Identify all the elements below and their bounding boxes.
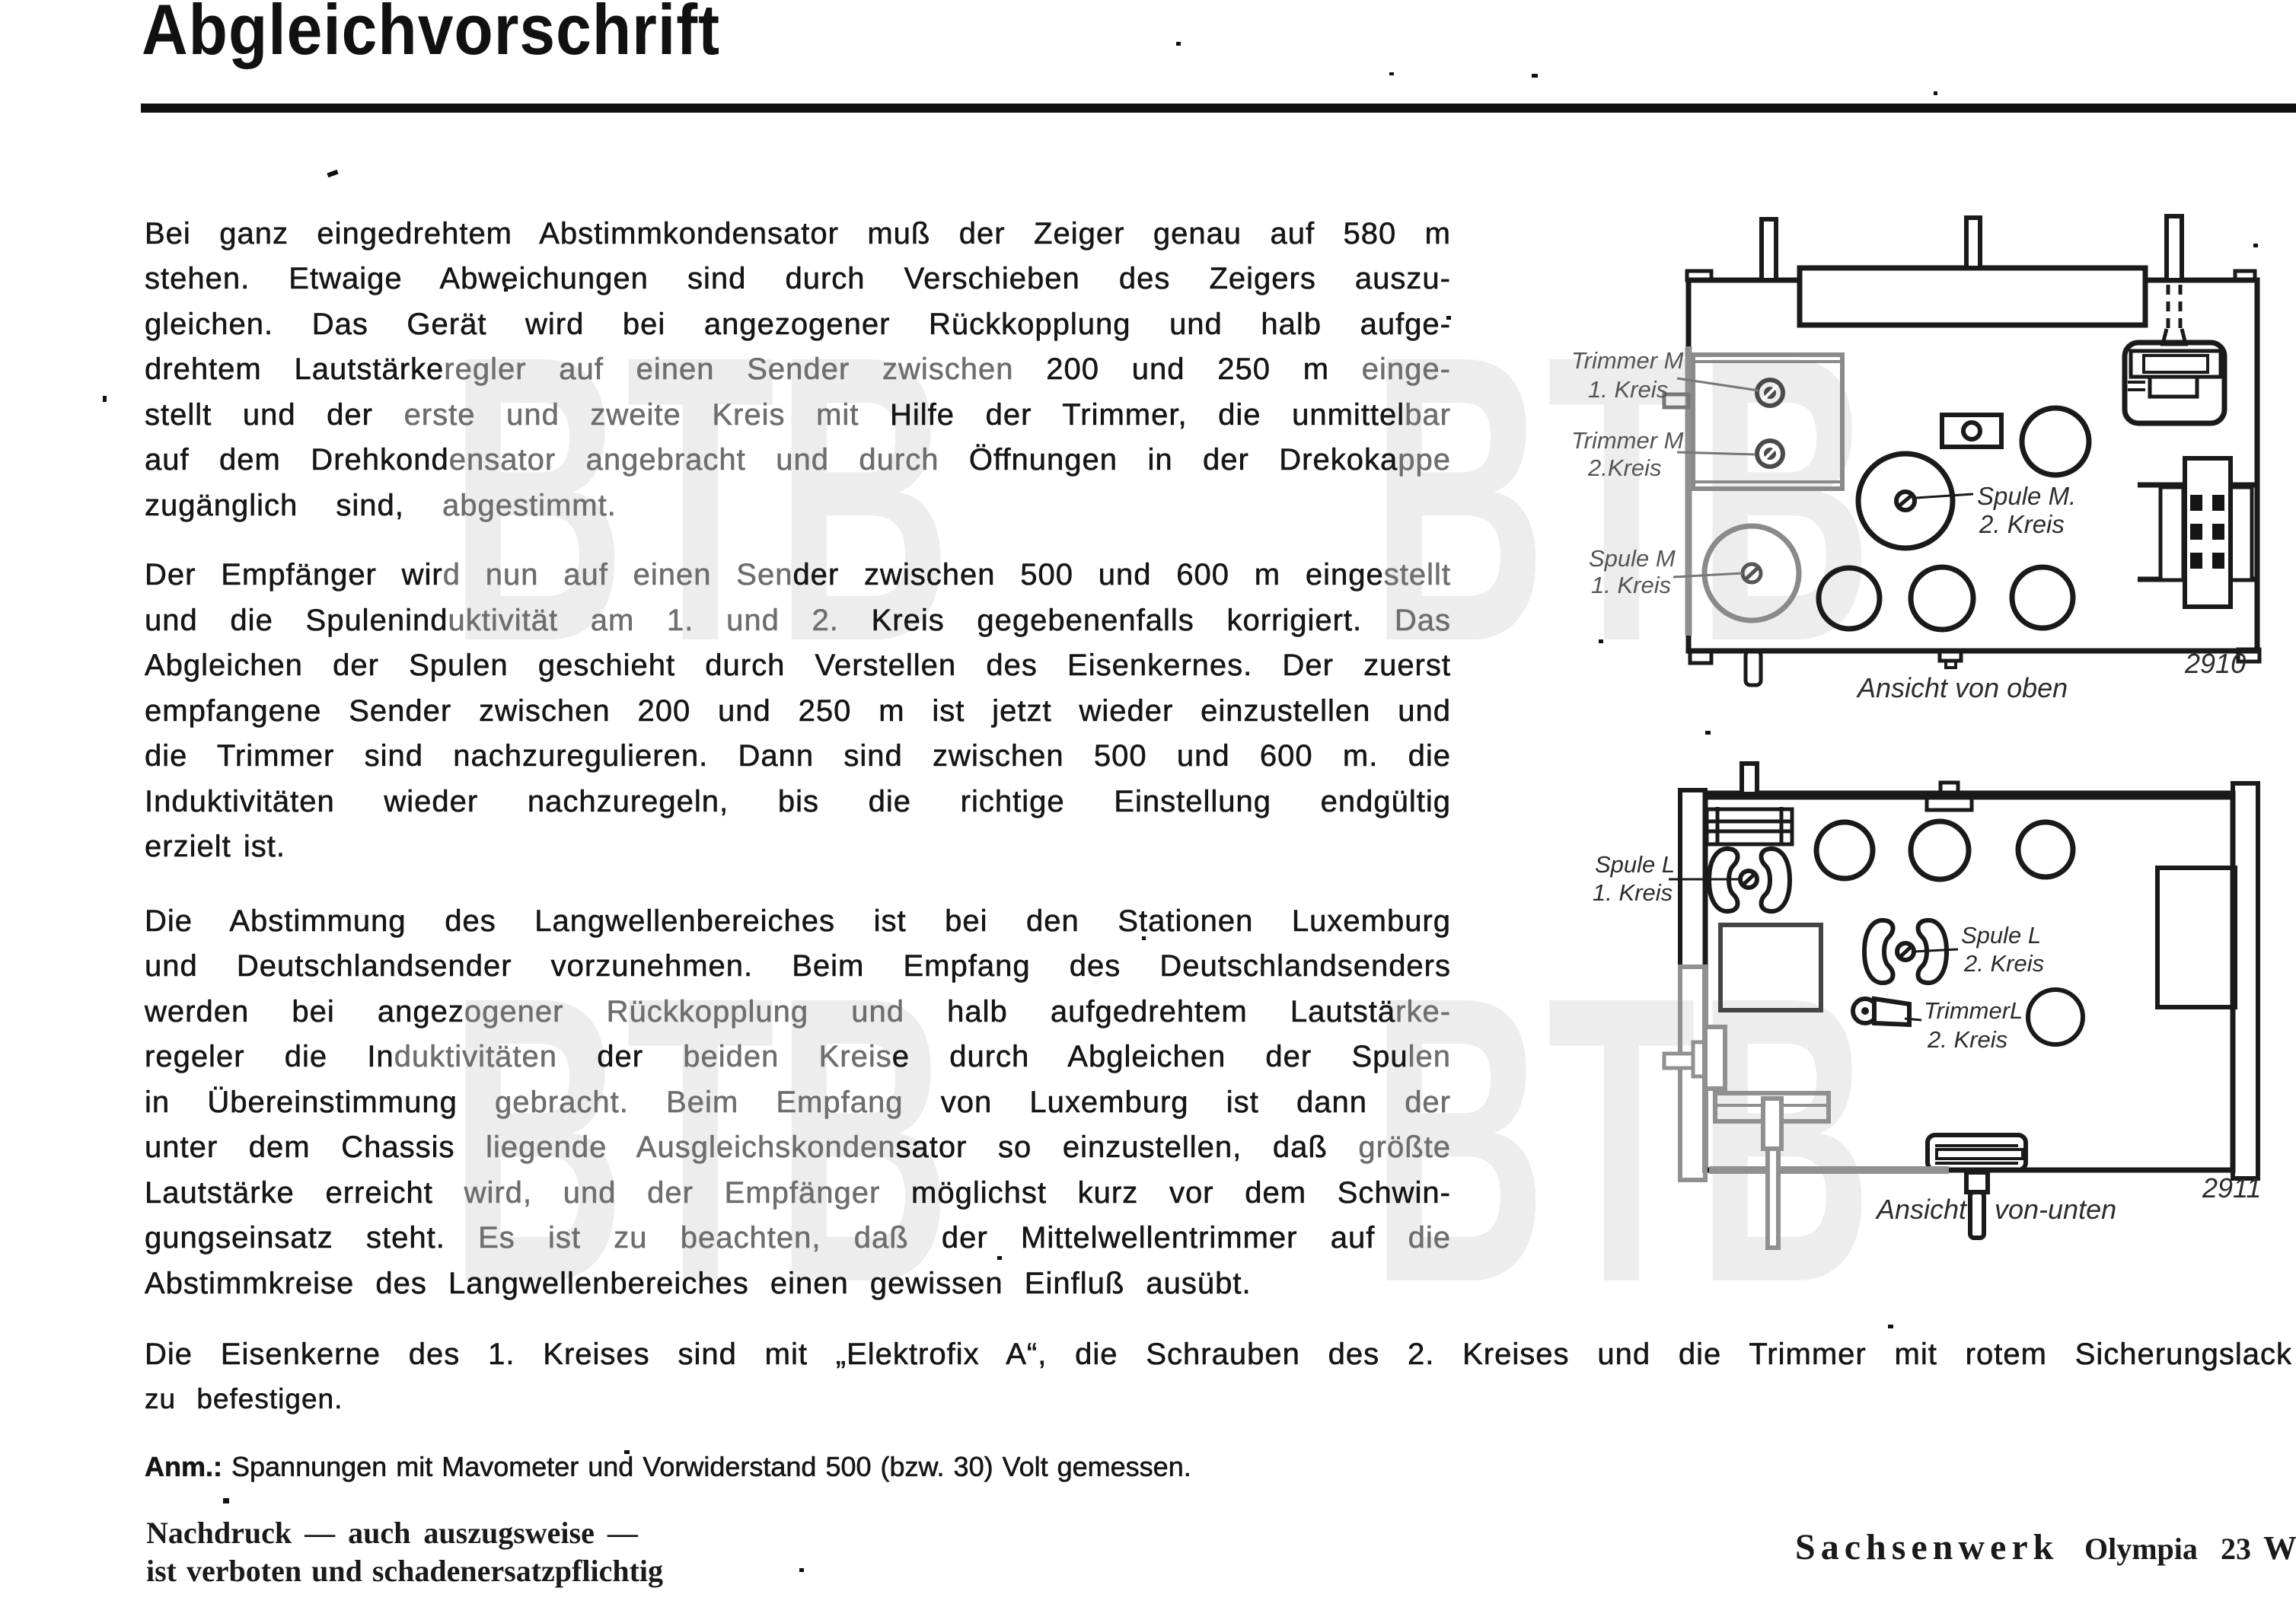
svg-text:TrimmerL: TrimmerL [1924,997,2023,1024]
svg-text:1. Kreis: 1. Kreis [1591,572,1671,598]
svg-text:1. Kreis: 1. Kreis [1593,879,1673,906]
svg-text:Ansicht: Ansicht [1875,1194,1968,1225]
svg-text:2911: 2911 [2202,1172,2261,1204]
svg-text:Spule L: Spule L [1595,851,1675,878]
svg-text:2. Kreis: 2. Kreis [1927,1026,2007,1053]
svg-text:Ansicht von oben: Ansicht von oben [1856,672,2068,703]
svg-text:Trimmer M: Trimmer M [1571,427,1684,454]
svg-text:von-unten: von-unten [1995,1194,2116,1225]
svg-text:2910: 2910 [2184,648,2246,679]
svg-text:Trimmer M: Trimmer M [1571,347,1684,374]
svg-text:Spule M.: Spule M. [1977,482,2076,510]
svg-text:2. Kreis: 2. Kreis [1979,510,2065,538]
svg-text:Spule M: Spule M [1589,545,1676,572]
svg-text:2. Kreis: 2. Kreis [1963,950,2044,977]
svg-text:2.Kreis: 2.Kreis [1587,454,1661,481]
svg-text:1. Kreis: 1. Kreis [1588,376,1668,403]
svg-text:Spule L: Spule L [1961,922,2041,949]
